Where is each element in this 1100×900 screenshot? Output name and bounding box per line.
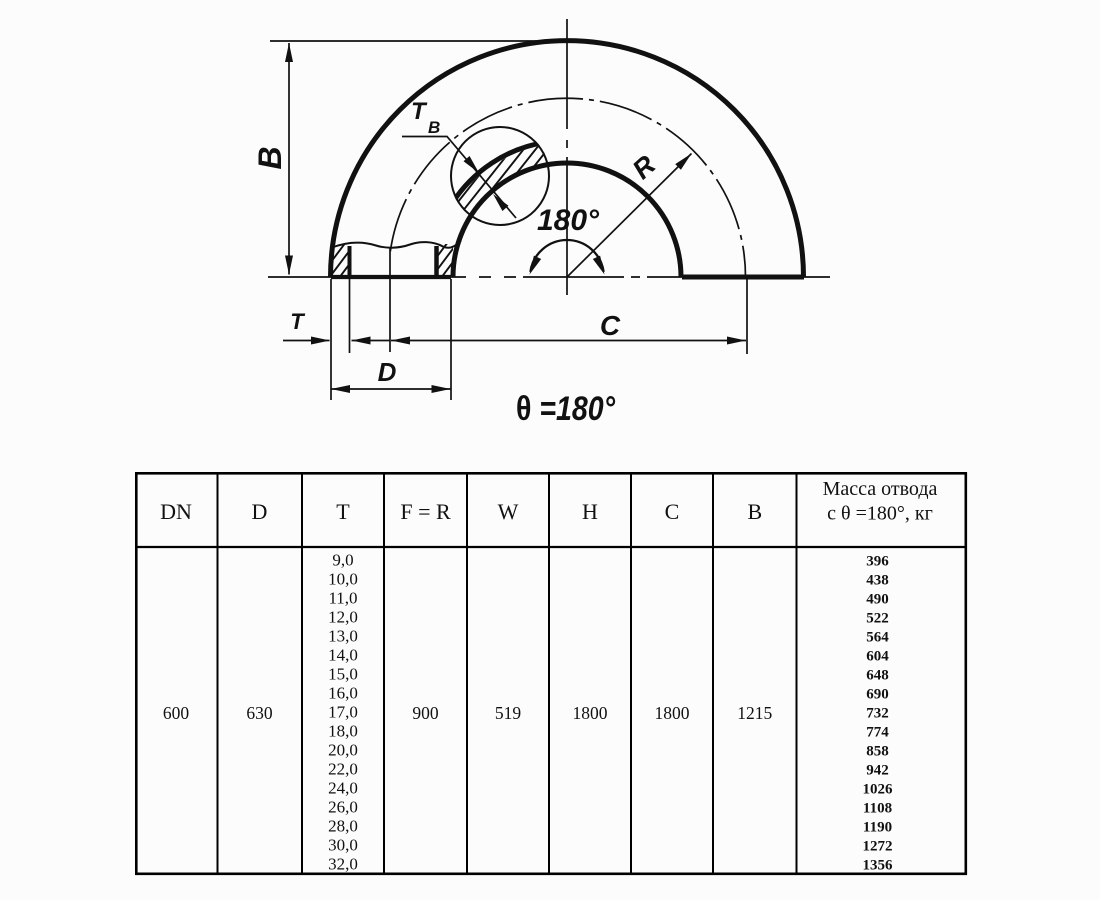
svg-text:10,0: 10,0 (328, 570, 358, 589)
svg-text:732: 732 (866, 706, 889, 722)
svg-text:690: 690 (866, 687, 889, 703)
svg-text:R: R (627, 149, 662, 185)
svg-text:T: T (411, 98, 428, 125)
svg-text:942: 942 (866, 763, 889, 779)
svg-text:630: 630 (246, 703, 273, 723)
svg-text:1800: 1800 (573, 703, 608, 723)
svg-text:1026: 1026 (863, 782, 894, 798)
svg-text:1356: 1356 (863, 858, 894, 874)
svg-text:26,0: 26,0 (328, 798, 358, 817)
svg-text:28,0: 28,0 (328, 817, 358, 836)
svg-text:T: T (336, 499, 350, 524)
svg-text:1272: 1272 (863, 839, 893, 855)
svg-text:1800: 1800 (655, 703, 690, 723)
svg-text:с θ =180°, кг: с θ =180°, кг (827, 503, 933, 525)
svg-text:D: D (378, 357, 397, 387)
svg-text:32,0: 32,0 (328, 855, 358, 874)
svg-text:180°: 180° (537, 204, 600, 237)
svg-text:1190: 1190 (863, 820, 892, 836)
svg-text:θ =180°: θ =180° (516, 390, 615, 428)
svg-text:22,0: 22,0 (328, 760, 358, 779)
svg-text:600: 600 (163, 703, 190, 723)
svg-text:B: B (252, 146, 288, 169)
svg-text:522: 522 (866, 611, 889, 627)
svg-text:30,0: 30,0 (328, 836, 358, 855)
svg-text:18,0: 18,0 (328, 722, 358, 741)
svg-text:16,0: 16,0 (328, 684, 358, 703)
svg-text:T: T (290, 309, 305, 334)
svg-text:490: 490 (866, 592, 889, 608)
svg-text:13,0: 13,0 (328, 627, 358, 646)
svg-text:DN: DN (160, 499, 192, 524)
svg-text:564: 564 (866, 630, 889, 646)
svg-text:858: 858 (866, 744, 889, 760)
svg-text:B: B (747, 499, 762, 524)
svg-text:W: W (498, 499, 519, 524)
svg-text:1215: 1215 (737, 703, 772, 723)
svg-text:D: D (252, 499, 268, 524)
svg-text:9,0: 9,0 (332, 551, 353, 570)
svg-text:H: H (582, 499, 598, 524)
svg-text:1108: 1108 (863, 801, 892, 817)
svg-text:438: 438 (866, 573, 889, 589)
svg-text:900: 900 (412, 703, 439, 723)
svg-text:519: 519 (495, 703, 522, 723)
svg-text:14,0: 14,0 (328, 646, 358, 665)
svg-text:12,0: 12,0 (328, 608, 358, 627)
svg-text:C: C (600, 310, 621, 341)
svg-text:17,0: 17,0 (328, 703, 358, 722)
svg-text:24,0: 24,0 (328, 779, 358, 798)
svg-text:B: B (428, 118, 440, 137)
svg-text:15,0: 15,0 (328, 665, 358, 684)
svg-text:20,0: 20,0 (328, 741, 358, 760)
svg-text:Масса отвода: Масса отвода (823, 478, 938, 500)
svg-text:396: 396 (866, 554, 889, 570)
svg-text:C: C (665, 499, 680, 524)
svg-text:774: 774 (866, 725, 889, 741)
svg-text:604: 604 (866, 649, 889, 665)
svg-text:648: 648 (866, 668, 889, 684)
svg-text:F = R: F = R (400, 499, 451, 524)
svg-text:11,0: 11,0 (328, 589, 357, 608)
